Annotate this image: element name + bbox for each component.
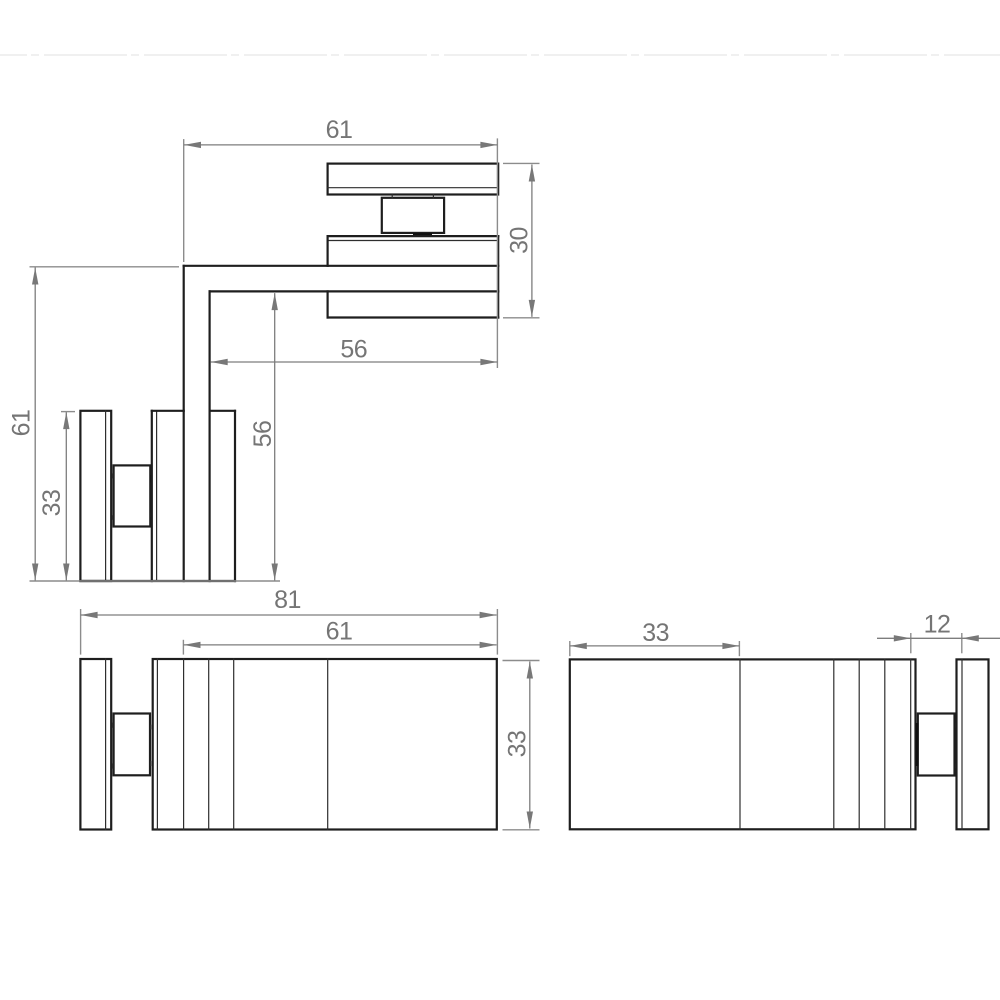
svg-text:56: 56 (340, 336, 367, 364)
svg-text:33: 33 (503, 731, 531, 758)
svg-text:33: 33 (642, 619, 669, 647)
svg-text:61: 61 (326, 618, 353, 646)
svg-text:56: 56 (249, 421, 277, 448)
svg-text:30: 30 (505, 227, 533, 254)
svg-text:61: 61 (8, 410, 36, 437)
svg-text:81: 81 (274, 586, 301, 614)
svg-text:33: 33 (38, 490, 66, 517)
svg-text:61: 61 (326, 116, 353, 144)
svg-text:12: 12 (924, 611, 951, 639)
